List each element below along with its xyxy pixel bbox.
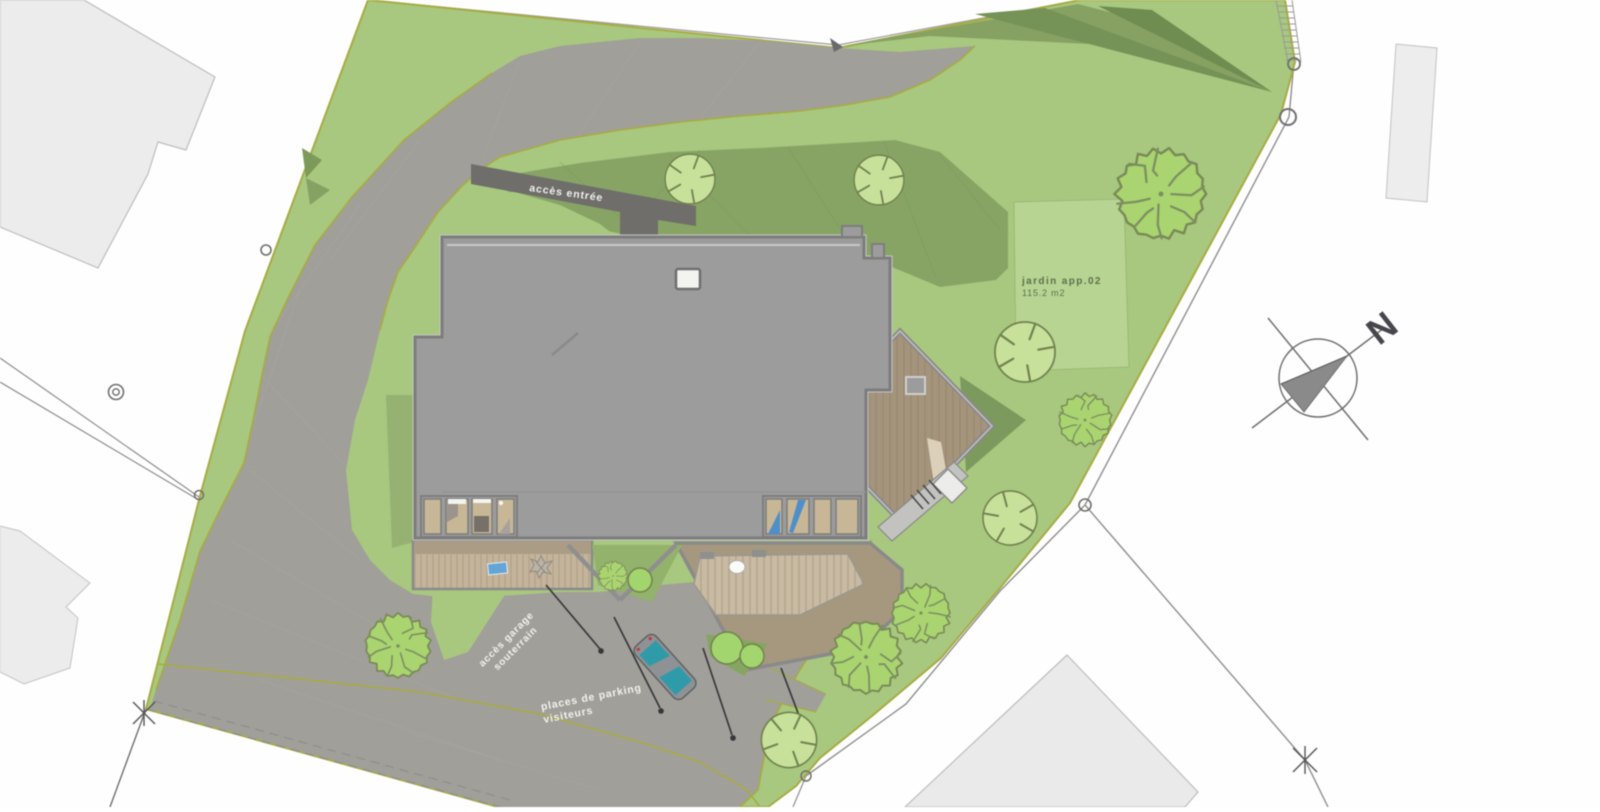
svg-text:115.2 m2: 115.2 m2: [1022, 288, 1065, 298]
svg-text:jardin app.02: jardin app.02: [1021, 276, 1102, 287]
